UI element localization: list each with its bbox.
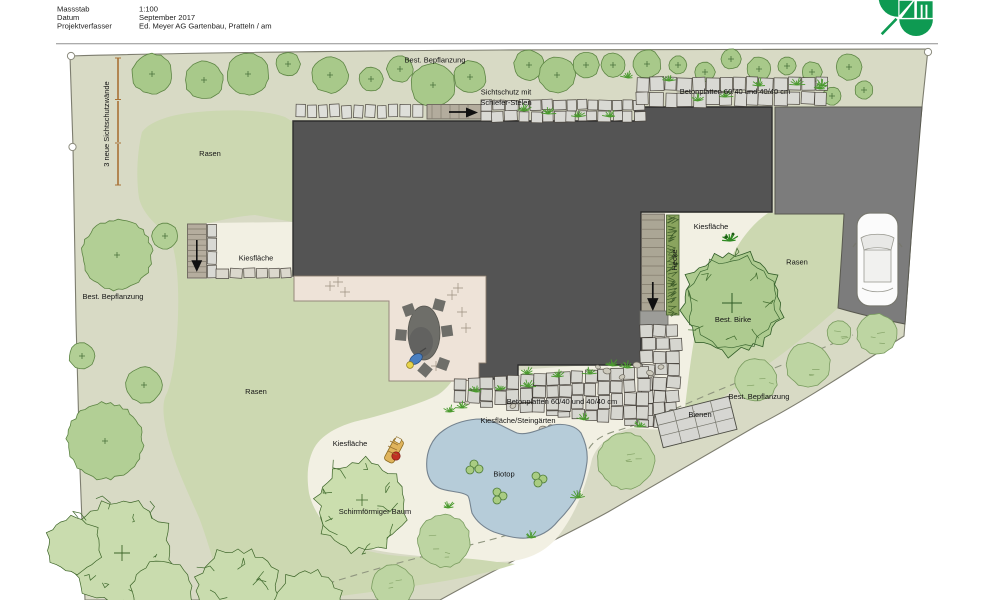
svg-text:Betonplatten 60/40 und 40/40 c: Betonplatten 60/40 und 40/40 cm xyxy=(507,397,618,406)
svg-text:Rasen: Rasen xyxy=(245,387,267,396)
svg-text:Rasen: Rasen xyxy=(199,149,221,158)
svg-text:Schirmförmiger Baum: Schirmförmiger Baum xyxy=(339,507,412,516)
svg-text:Kiesfläche: Kiesfläche xyxy=(694,222,729,231)
svg-text:Betonplatten 60/40 und 40/40 c: Betonplatten 60/40 und 40/40 cm xyxy=(680,87,791,96)
svg-text:Best. Bepflanzung: Best. Bepflanzung xyxy=(405,56,466,65)
svg-text:Projektverfasser: Projektverfasser xyxy=(57,22,112,31)
svg-text:Sichtschutz mit: Sichtschutz mit xyxy=(481,88,532,97)
svg-text:Kiesfläche: Kiesfläche xyxy=(333,439,368,448)
svg-text:Best. Bepflanzung: Best. Bepflanzung xyxy=(83,292,144,301)
svg-text:Best. Bepflanzung: Best. Bepflanzung xyxy=(729,392,790,401)
svg-text:Ed. Meyer AG Gartenbau, Pratte: Ed. Meyer AG Gartenbau, Pratteln / am xyxy=(139,22,272,31)
svg-text:Biotop: Biotop xyxy=(493,470,514,479)
svg-text:Kiesfläche/Steingärten: Kiesfläche/Steingärten xyxy=(480,416,555,425)
svg-text:Best. Birke: Best. Birke xyxy=(715,315,751,324)
svg-text:Schiefer-Stelen: Schiefer-Stelen xyxy=(480,98,531,107)
svg-text:3 neue Sichtschutzwände: 3 neue Sichtschutzwände xyxy=(102,81,111,166)
svg-text:Rasen: Rasen xyxy=(786,258,808,267)
svg-text:Hecke: Hecke xyxy=(670,249,679,270)
svg-text:Bienen: Bienen xyxy=(688,410,711,419)
svg-text:Kiesfläche: Kiesfläche xyxy=(239,254,274,263)
